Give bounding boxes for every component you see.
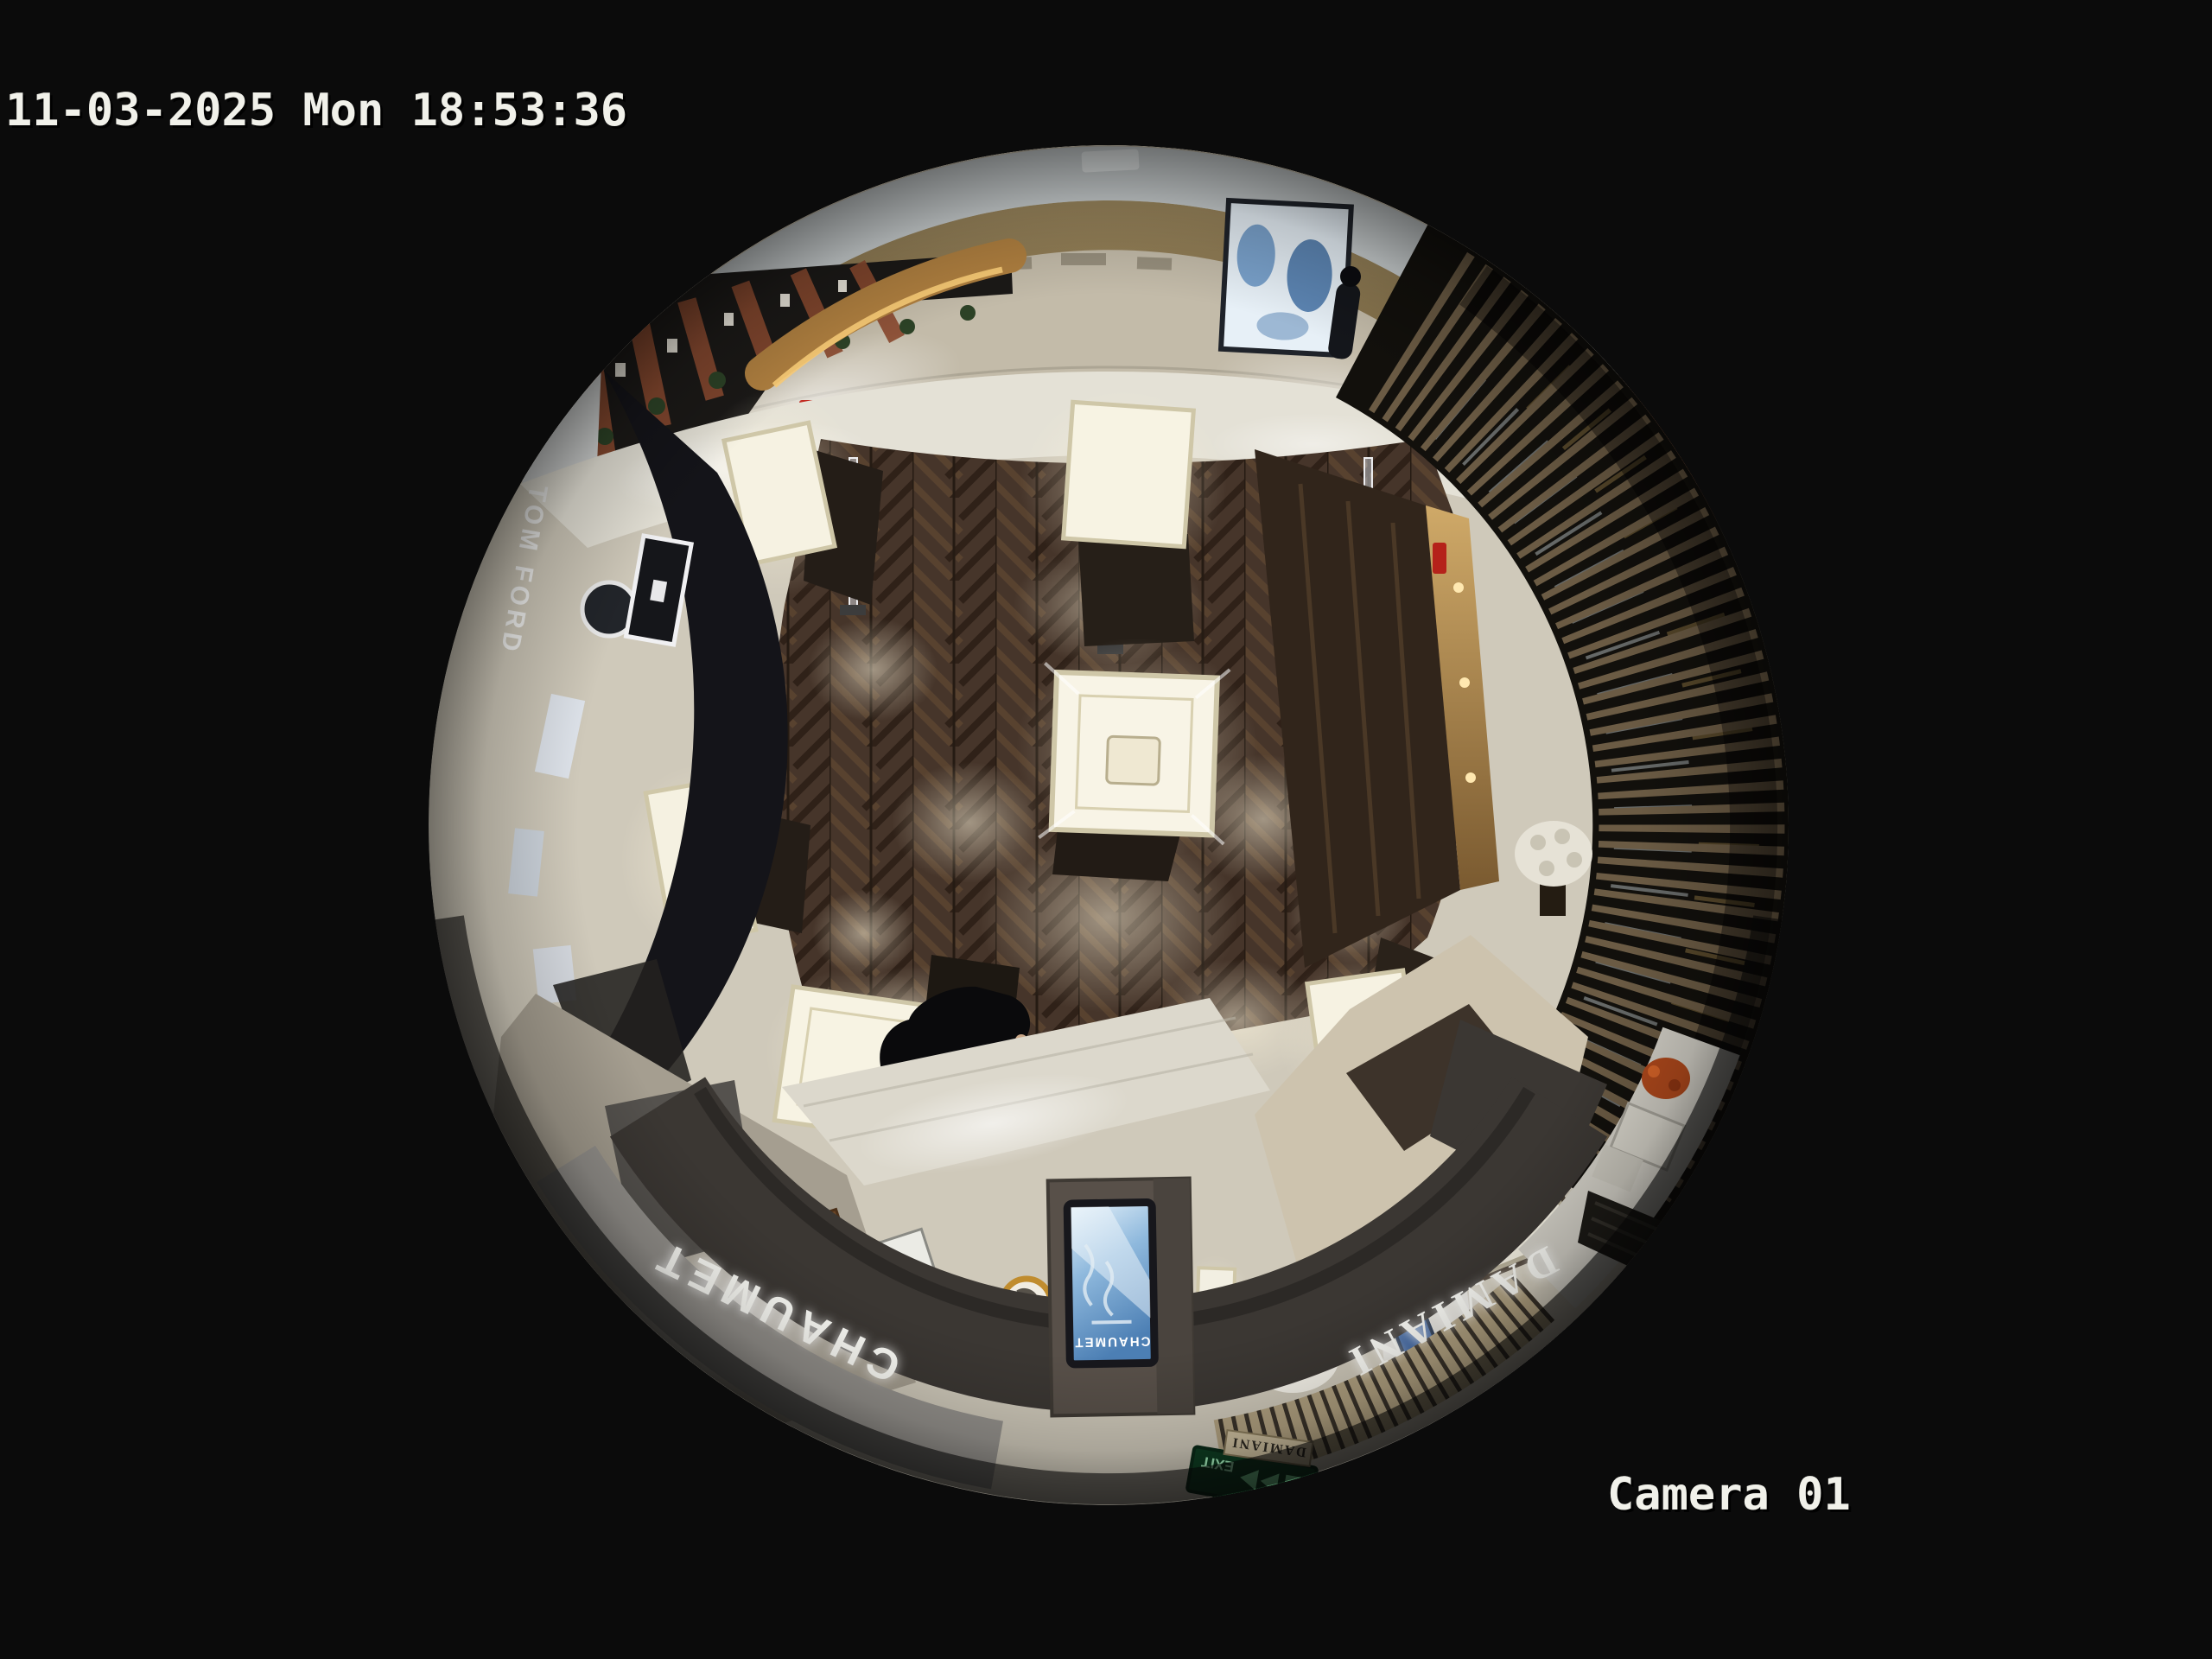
fisheye-scene: TOM FORD (0, 0, 2212, 1659)
osd-camera-label: Camera 01 (1607, 1469, 1851, 1521)
osd-timestamp: 11-03-2025 Mon 18:53:36 (5, 85, 627, 137)
cctv-frame: TOM FORD (0, 0, 2212, 1659)
lens-vignette (429, 145, 1789, 1505)
